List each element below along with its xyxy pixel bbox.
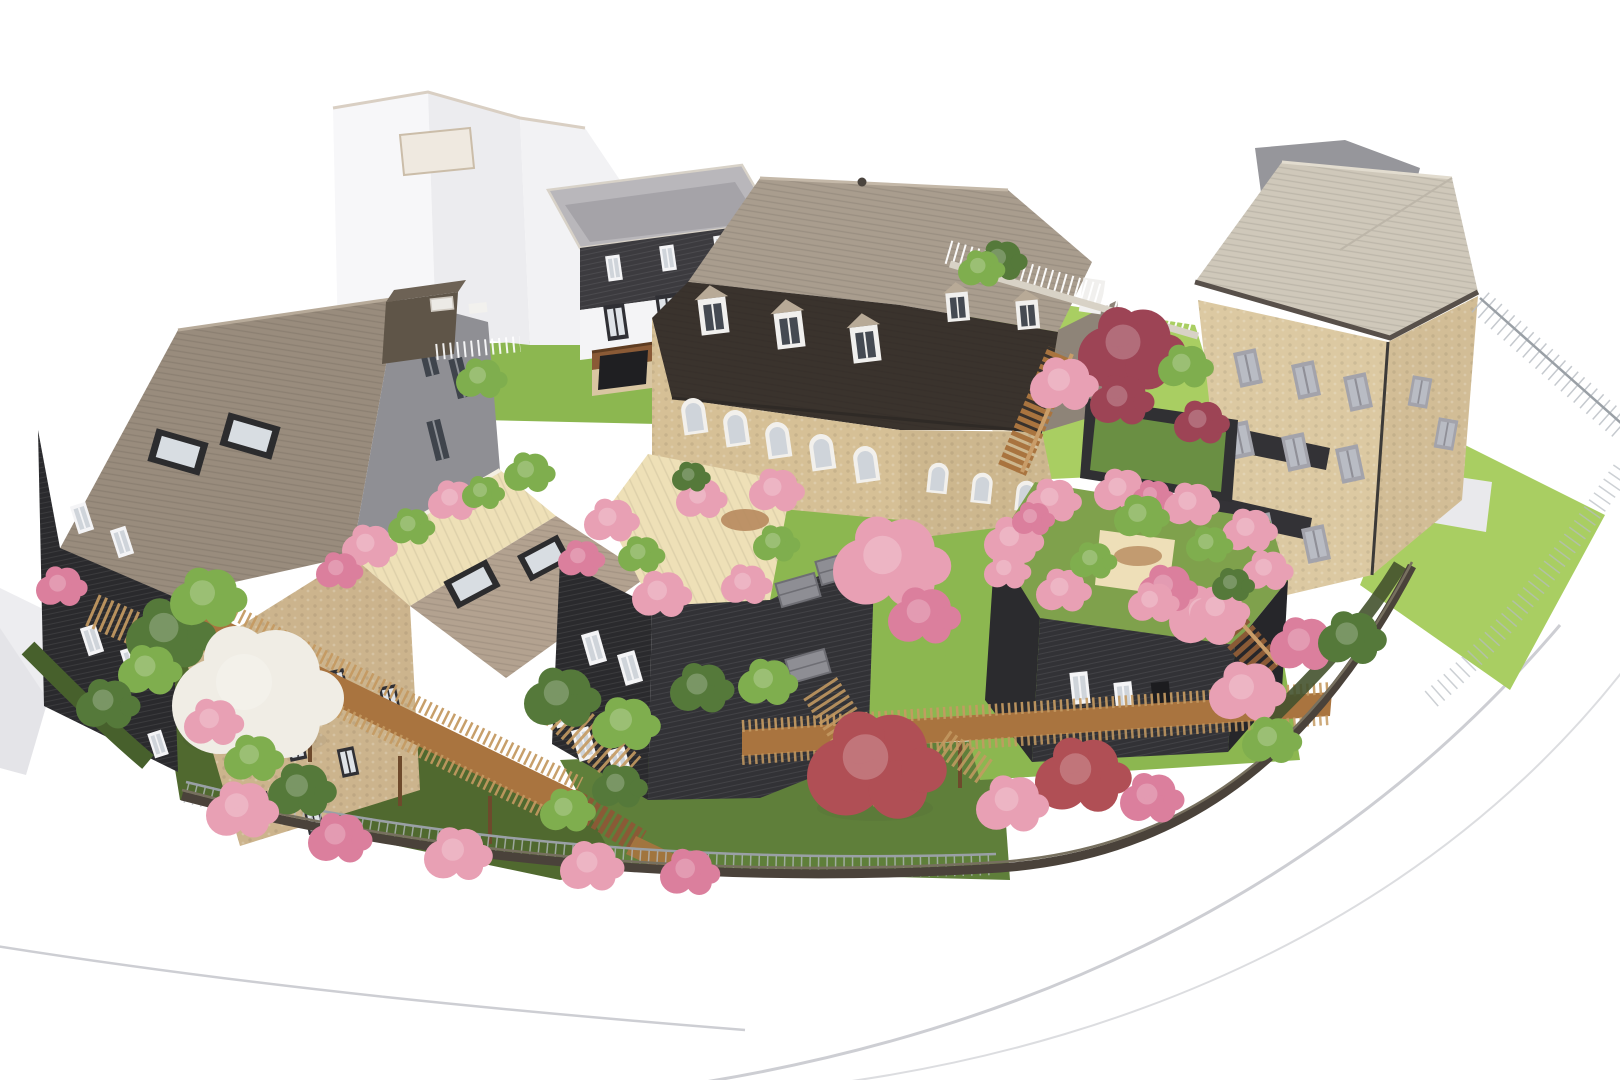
wire-fence bbox=[1480, 302, 1620, 428]
street-curb-line bbox=[0, 945, 745, 1030]
roof-vent bbox=[858, 178, 867, 187]
roof-dirt bbox=[1114, 546, 1162, 566]
wire-fence-rail bbox=[1480, 298, 1620, 424]
roof-vent-box bbox=[469, 302, 488, 314]
roof-dirt bbox=[721, 509, 769, 531]
hedge-shrub bbox=[1318, 611, 1387, 664]
roof-vent-box bbox=[430, 297, 453, 311]
roof-tree-green bbox=[504, 452, 556, 492]
white-block-dormer-box bbox=[400, 128, 474, 175]
architectural-rendering bbox=[0, 0, 1620, 1080]
rendering-canvas bbox=[0, 0, 1620, 1080]
townhouse-canopy bbox=[598, 350, 648, 390]
